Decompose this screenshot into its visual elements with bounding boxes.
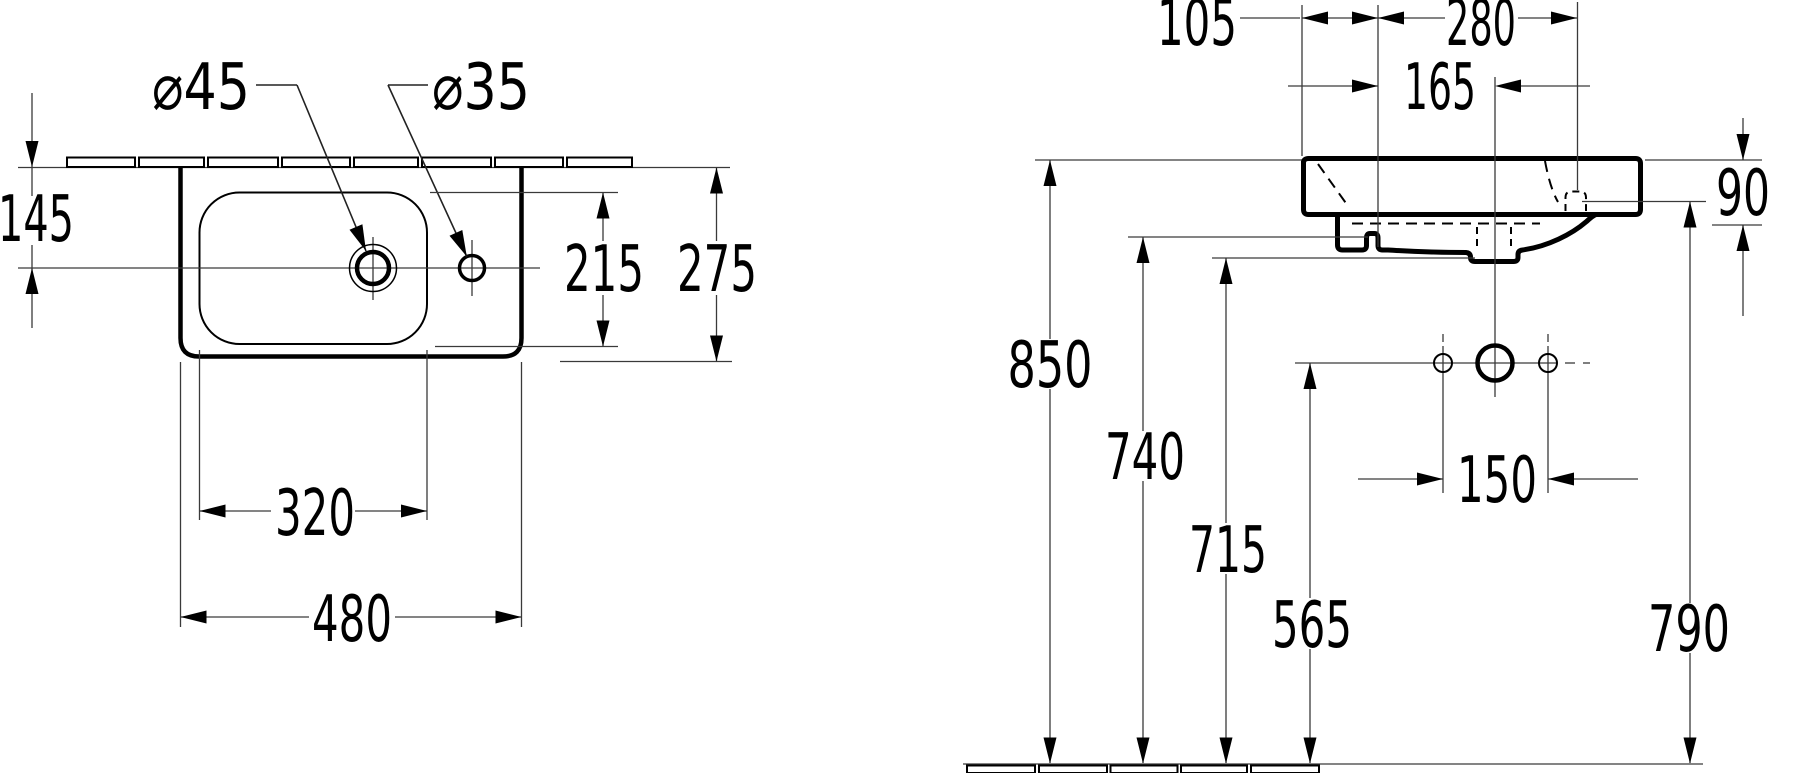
dim-480-label: 480 <box>312 583 392 657</box>
dim-715: 715 <box>1189 258 1267 764</box>
dim-275-label: 275 <box>677 233 757 307</box>
dim-105: 105 <box>1157 0 1378 61</box>
dim-320: 320 <box>200 350 428 551</box>
dim-165: 165 <box>1288 51 1590 125</box>
dim-150: 150 <box>1358 444 1638 518</box>
drawing-canvas: ⌀45 ⌀35 145 215 <box>0 0 1803 773</box>
top-view: ⌀45 ⌀35 145 215 <box>0 51 757 657</box>
dim-740-label: 740 <box>1105 421 1185 495</box>
dim-740: 740 <box>1105 237 1185 764</box>
dim-790: 790 <box>1648 202 1730 764</box>
dim-565: 565 <box>1272 363 1352 764</box>
dim-145: 145 <box>0 93 74 328</box>
dim-215: 215 <box>430 193 644 347</box>
dim-90: 90 <box>1716 118 1770 316</box>
dim-320-label: 320 <box>275 477 355 551</box>
floor-hatch <box>963 764 1703 773</box>
dim-90-label: 90 <box>1716 157 1770 231</box>
wall-hatch <box>18 158 730 168</box>
leader-dia45: ⌀45 <box>152 51 366 251</box>
dim-715-label: 715 <box>1189 514 1267 588</box>
dim-145-label: 145 <box>0 183 74 257</box>
dim-850-label: 850 <box>1008 329 1093 403</box>
dim-105-label: 105 <box>1157 0 1237 61</box>
dim-790-label: 790 <box>1648 593 1730 667</box>
technical-drawing: ⌀45 ⌀35 145 215 <box>0 0 1803 773</box>
dia45-label: ⌀45 <box>152 51 250 125</box>
basin-outline-front <box>1304 159 1641 262</box>
dim-150-label: 150 <box>1457 444 1537 518</box>
dim-565-label: 565 <box>1272 589 1352 663</box>
front-view: 105 280 165 90 <box>963 0 1770 773</box>
hidden-lines-front <box>1318 161 1586 249</box>
leader-dia35: ⌀35 <box>388 51 530 257</box>
dim-165-label: 165 <box>1404 51 1476 125</box>
dim-850: 850 <box>1008 160 1093 764</box>
dia35-label: ⌀35 <box>432 51 530 125</box>
dim-215-label: 215 <box>564 233 644 307</box>
